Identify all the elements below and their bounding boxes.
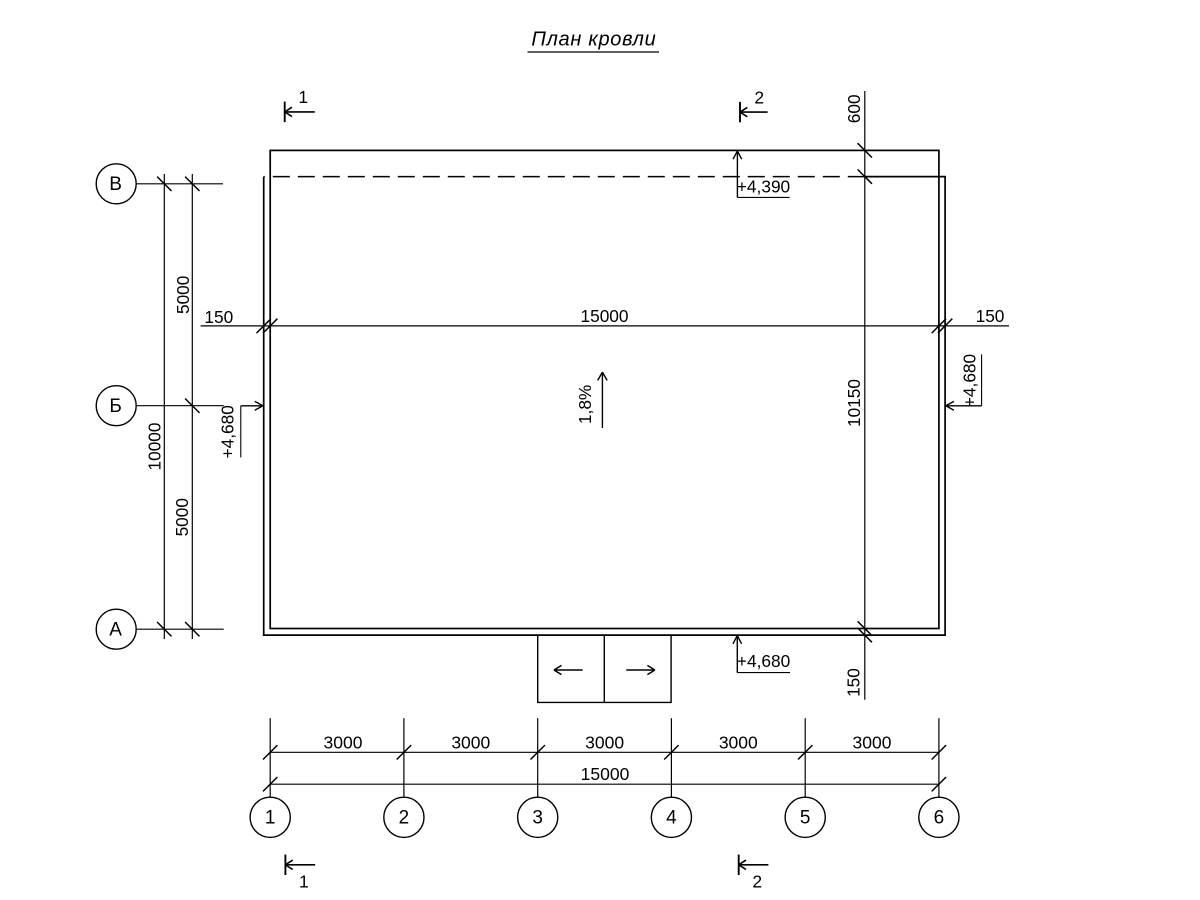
svg-text:10000: 10000 xyxy=(145,422,165,470)
svg-text:3000: 3000 xyxy=(451,732,490,752)
svg-text:150: 150 xyxy=(844,668,864,697)
svg-text:2: 2 xyxy=(399,808,410,829)
svg-text:5000: 5000 xyxy=(172,498,192,536)
svg-text:150: 150 xyxy=(204,307,233,327)
svg-text:600: 600 xyxy=(844,94,864,123)
svg-text:+4,680: +4,680 xyxy=(960,354,980,407)
svg-text:1: 1 xyxy=(299,872,309,892)
svg-text:3000: 3000 xyxy=(719,732,758,752)
svg-text:2: 2 xyxy=(752,872,762,892)
svg-text:4: 4 xyxy=(666,808,677,829)
svg-text:3000: 3000 xyxy=(324,732,363,752)
svg-text:В: В xyxy=(109,174,122,195)
svg-text:1,8%: 1,8% xyxy=(575,385,595,424)
svg-text:+4,390: +4,390 xyxy=(737,176,790,196)
svg-text:5000: 5000 xyxy=(173,276,193,314)
svg-text:6: 6 xyxy=(934,808,945,829)
svg-text:План кровли: План кровли xyxy=(531,28,656,50)
svg-text:3: 3 xyxy=(532,808,543,829)
svg-text:10150: 10150 xyxy=(844,379,864,427)
svg-text:Б: Б xyxy=(109,396,121,417)
svg-text:1: 1 xyxy=(265,808,276,829)
svg-text:3000: 3000 xyxy=(585,732,624,752)
svg-text:3000: 3000 xyxy=(853,732,892,752)
svg-text:1: 1 xyxy=(298,87,308,107)
svg-text:5: 5 xyxy=(800,808,811,829)
svg-text:15000: 15000 xyxy=(580,306,628,326)
svg-text:15000: 15000 xyxy=(581,764,630,784)
svg-text:150: 150 xyxy=(976,306,1005,326)
svg-text:+4,680: +4,680 xyxy=(217,405,237,458)
svg-text:+4,680: +4,680 xyxy=(737,651,790,671)
svg-text:А: А xyxy=(109,620,122,641)
svg-text:2: 2 xyxy=(754,88,764,108)
